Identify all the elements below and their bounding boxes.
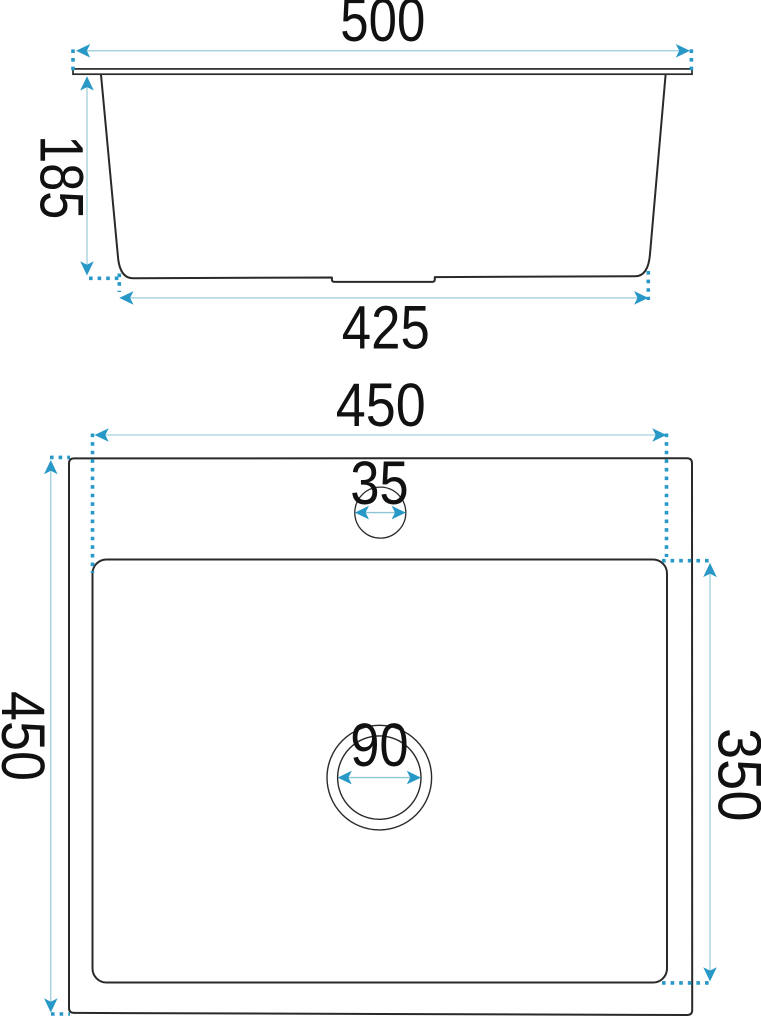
- svg-text:350: 350: [705, 728, 761, 822]
- svg-text:450: 450: [336, 371, 426, 439]
- svg-text:185: 185: [28, 135, 96, 219]
- svg-text:500: 500: [340, 0, 425, 54]
- svg-text:425: 425: [342, 294, 430, 362]
- svg-text:90: 90: [350, 711, 409, 779]
- svg-text:35: 35: [350, 449, 409, 517]
- svg-text:450: 450: [0, 691, 57, 781]
